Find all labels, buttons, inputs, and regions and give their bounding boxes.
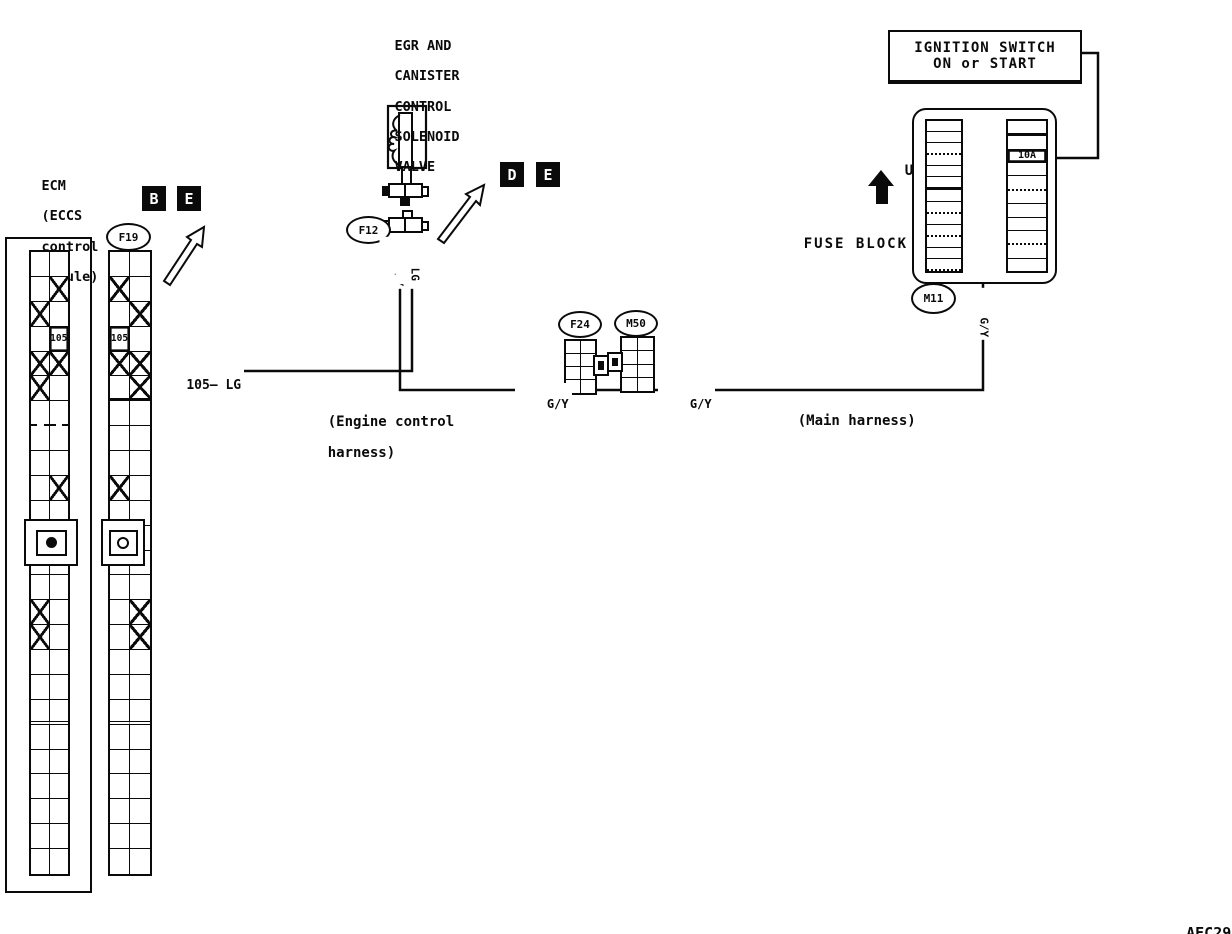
terminal-cell [110,799,130,824]
arrow-to-be-icon [164,227,204,285]
terminal-cell [31,774,50,799]
fuse-slot [1008,204,1046,217]
doc-code: AEC293 [1150,908,1232,934]
connector-cell [566,341,581,354]
terminal-number-cell: 105 [50,327,69,352]
terminal-cell [50,824,69,849]
connector-cell [622,378,638,391]
terminal-cell [31,376,50,401]
terminal-cell [110,426,130,451]
view-ref-e2: E [536,162,560,187]
terminal-cell [31,750,50,775]
doc-code-text: AEC293 [1186,924,1232,934]
m11-text: M11 [924,292,944,305]
terminal-cell [50,625,69,650]
fuse-slot [927,190,961,201]
terminal-cell [130,774,150,799]
terminal-cell [110,277,130,302]
fuse-block-box: 10A [912,108,1057,284]
wire-105-lg-text: 105— LG [186,378,241,393]
connector-cell [638,365,654,378]
terminal-cell [50,252,69,277]
terminal-cell [31,725,50,750]
wire-label-105-lg: 105— LG [152,363,244,408]
terminal-cell [50,700,69,725]
ecm-label-line2: (ECCS [42,208,83,224]
terminal-cell [50,401,69,426]
terminal-cell [50,575,69,600]
view-ref-e1-text: E [184,190,193,208]
terminal-cell [31,252,50,277]
terminal-cell [110,675,130,700]
terminal-cell [130,625,150,650]
fuse-slot [1008,191,1046,204]
terminal-cell [31,426,50,451]
terminal-cell [31,600,50,625]
terminal-cell [110,352,130,377]
terminal-cell [50,426,69,451]
terminal-cell [110,252,130,277]
m50-connector-grid [620,336,655,393]
terminal-cell [50,774,69,799]
terminal-cell [130,302,150,327]
view-ref-d: D [500,162,524,187]
terminal-cell [31,451,50,476]
fuse-slot [927,214,961,225]
terminal-cell [31,700,50,725]
terminal-cell [31,302,50,327]
terminal-cell [50,302,69,327]
terminal-cell [31,277,50,302]
valve-label-line3: CONTROL [395,99,452,115]
terminal-cell [110,650,130,675]
terminal-cell [130,252,150,277]
valve-label-line1: EGR AND [395,38,452,54]
connector-label-f24: F24 [558,311,602,338]
connector-label-f19: F19 [106,223,151,251]
connector-cell [581,341,596,354]
terminal-cell [130,600,150,625]
terminal-cell [110,476,130,501]
terminal-cell [31,352,50,377]
terminal-cell [130,799,150,824]
fuse-slot [927,177,961,190]
terminal-cell [110,401,130,426]
terminal-cell [130,476,150,501]
terminal-cell [31,849,50,874]
connector-label-m50: M50 [614,310,658,337]
terminal-cell [50,376,69,401]
fuse-slot [1008,231,1046,245]
terminal-cell [50,600,69,625]
terminal-cell [31,476,50,501]
terminal-cell [130,725,150,750]
connector-cell [622,365,638,378]
f12-text: F12 [359,224,379,237]
view-ref-d-text: D [507,166,516,184]
terminal-cell [110,774,130,799]
gy-f24-text: G/Y [547,397,569,411]
fuse-slot [1008,218,1046,231]
fuse-slot [927,143,961,155]
connector-cell [566,367,581,380]
connector-cell [622,338,638,351]
f24-text: F24 [570,318,590,331]
terminal-cell [31,625,50,650]
terminal-cell [130,650,150,675]
terminal-cell [31,401,50,426]
fuse-slot [927,225,961,237]
terminal-cell [130,849,150,874]
terminal-cell [31,824,50,849]
terminal-cell [130,352,150,377]
fuse-strip-left [925,119,963,273]
main-harness-note: (Main harness) [764,398,916,445]
terminal-cell [31,650,50,675]
wire-label-gy-f24: G/Y [515,383,572,425]
terminal-cell [50,277,69,302]
fuse-block-label: FUSE BLOCK [762,221,908,268]
main-harness-text: (Main harness) [798,413,916,429]
valve-label-line5: VALVE [395,159,436,175]
fuse-slot [1008,121,1046,136]
terminal-cell [31,327,50,352]
fuse-slot [927,248,961,259]
fuse-slot [927,155,961,166]
terminal-cell [50,451,69,476]
lg-valve-text: LG [409,268,422,281]
terminal-cell [31,799,50,824]
wire-label-gy-m50: G/Y [658,383,715,425]
view-ref-e1: E [177,186,201,211]
gy-m50-text: G/Y [690,397,712,411]
wire-label-gy-fuse: G/Y [965,288,1004,340]
connector-cell [622,351,638,364]
connector-cell [566,354,581,367]
terminal-cell [130,277,150,302]
terminal-cell [50,476,69,501]
ecm-lock-icon [24,519,78,566]
ecm-label-line1: ECM [42,178,66,194]
terminal-cell [110,376,130,401]
terminal-cell [31,675,50,700]
engine-harness-line2: harness) [328,445,395,461]
terminal-cell [130,675,150,700]
view-ref-e2-text: E [543,166,552,184]
fuse-slot [927,121,961,132]
arrow-to-de-icon [438,185,484,243]
fuse-slot [927,202,961,214]
terminal-cell [110,824,130,849]
f19-lock-icon [101,519,145,566]
view-ref-b: B [142,186,166,211]
valve-label-line4: SOLENOID [395,129,460,145]
wire-label-lg-valve: LG [396,238,435,284]
engine-harness-line1: (Engine control [328,414,454,430]
fuse-slot [1008,136,1046,149]
fuse-block-text: FUSE BLOCK [804,236,908,252]
terminal-cell [130,327,150,352]
ignition-line2: ON or START [933,56,1037,72]
wiring-diagram: ECM (ECCS control module) 105 105 F19 B … [0,0,1232,934]
terminal-cell [110,600,130,625]
fuse-10a: 10A [1008,150,1046,163]
terminal-cell [110,575,130,600]
terminal-cell [110,302,130,327]
valve-label-line2: CANISTER [395,68,460,84]
terminal-cell [50,675,69,700]
terminal-cell [130,401,150,426]
connector-cell [638,378,654,391]
connector-cell [638,351,654,364]
fuse-slot [1008,245,1046,258]
terminal-cell [130,376,150,401]
fuse-slot [1008,163,1046,176]
fuse-slot [1008,259,1046,271]
m50-tab-icon [607,352,623,372]
terminal-cell [130,700,150,725]
terminal-cell [130,575,150,600]
terminal-cell [130,451,150,476]
connector-cell [581,380,596,393]
terminal-cell [110,625,130,650]
ignition-line1: IGNITION SWITCH [914,40,1055,56]
terminal-cell [50,650,69,675]
connector-label-m11: M11 [911,283,956,314]
terminal-cell [50,750,69,775]
terminal-cell [110,700,130,725]
fuse-slot [1008,176,1046,190]
terminal-cell [50,352,69,377]
terminal-cell [110,750,130,775]
terminal-cell [110,849,130,874]
terminal-cell [50,849,69,874]
fuse-slot [927,259,961,271]
terminal-cell [50,799,69,824]
fuse-strip-right: 10A [1006,119,1048,273]
m50-text: M50 [626,317,646,330]
valve-label: EGR AND CANISTER CONTROL SOLENOID VALVE [362,24,460,190]
terminal-cell [110,725,130,750]
terminal-cell [31,575,50,600]
terminal-cell [130,824,150,849]
terminal-cell [50,725,69,750]
terminal-cell [130,426,150,451]
terminal-cell [110,451,130,476]
fuse-slot [927,237,961,248]
ignition-switch-box: IGNITION SWITCH ON or START [888,30,1082,82]
connector-cell [638,338,654,351]
terminal-cell [130,750,150,775]
f19-text: F19 [119,231,139,244]
view-ref-b-text: B [149,190,158,208]
terminal-number-cell: 105 [110,327,130,352]
fuse-slot [927,132,961,143]
fuse-slot [927,166,961,177]
engine-harness-note: (Engine control harness) [294,399,454,477]
gy-fuse-text: G/Y [978,317,991,337]
